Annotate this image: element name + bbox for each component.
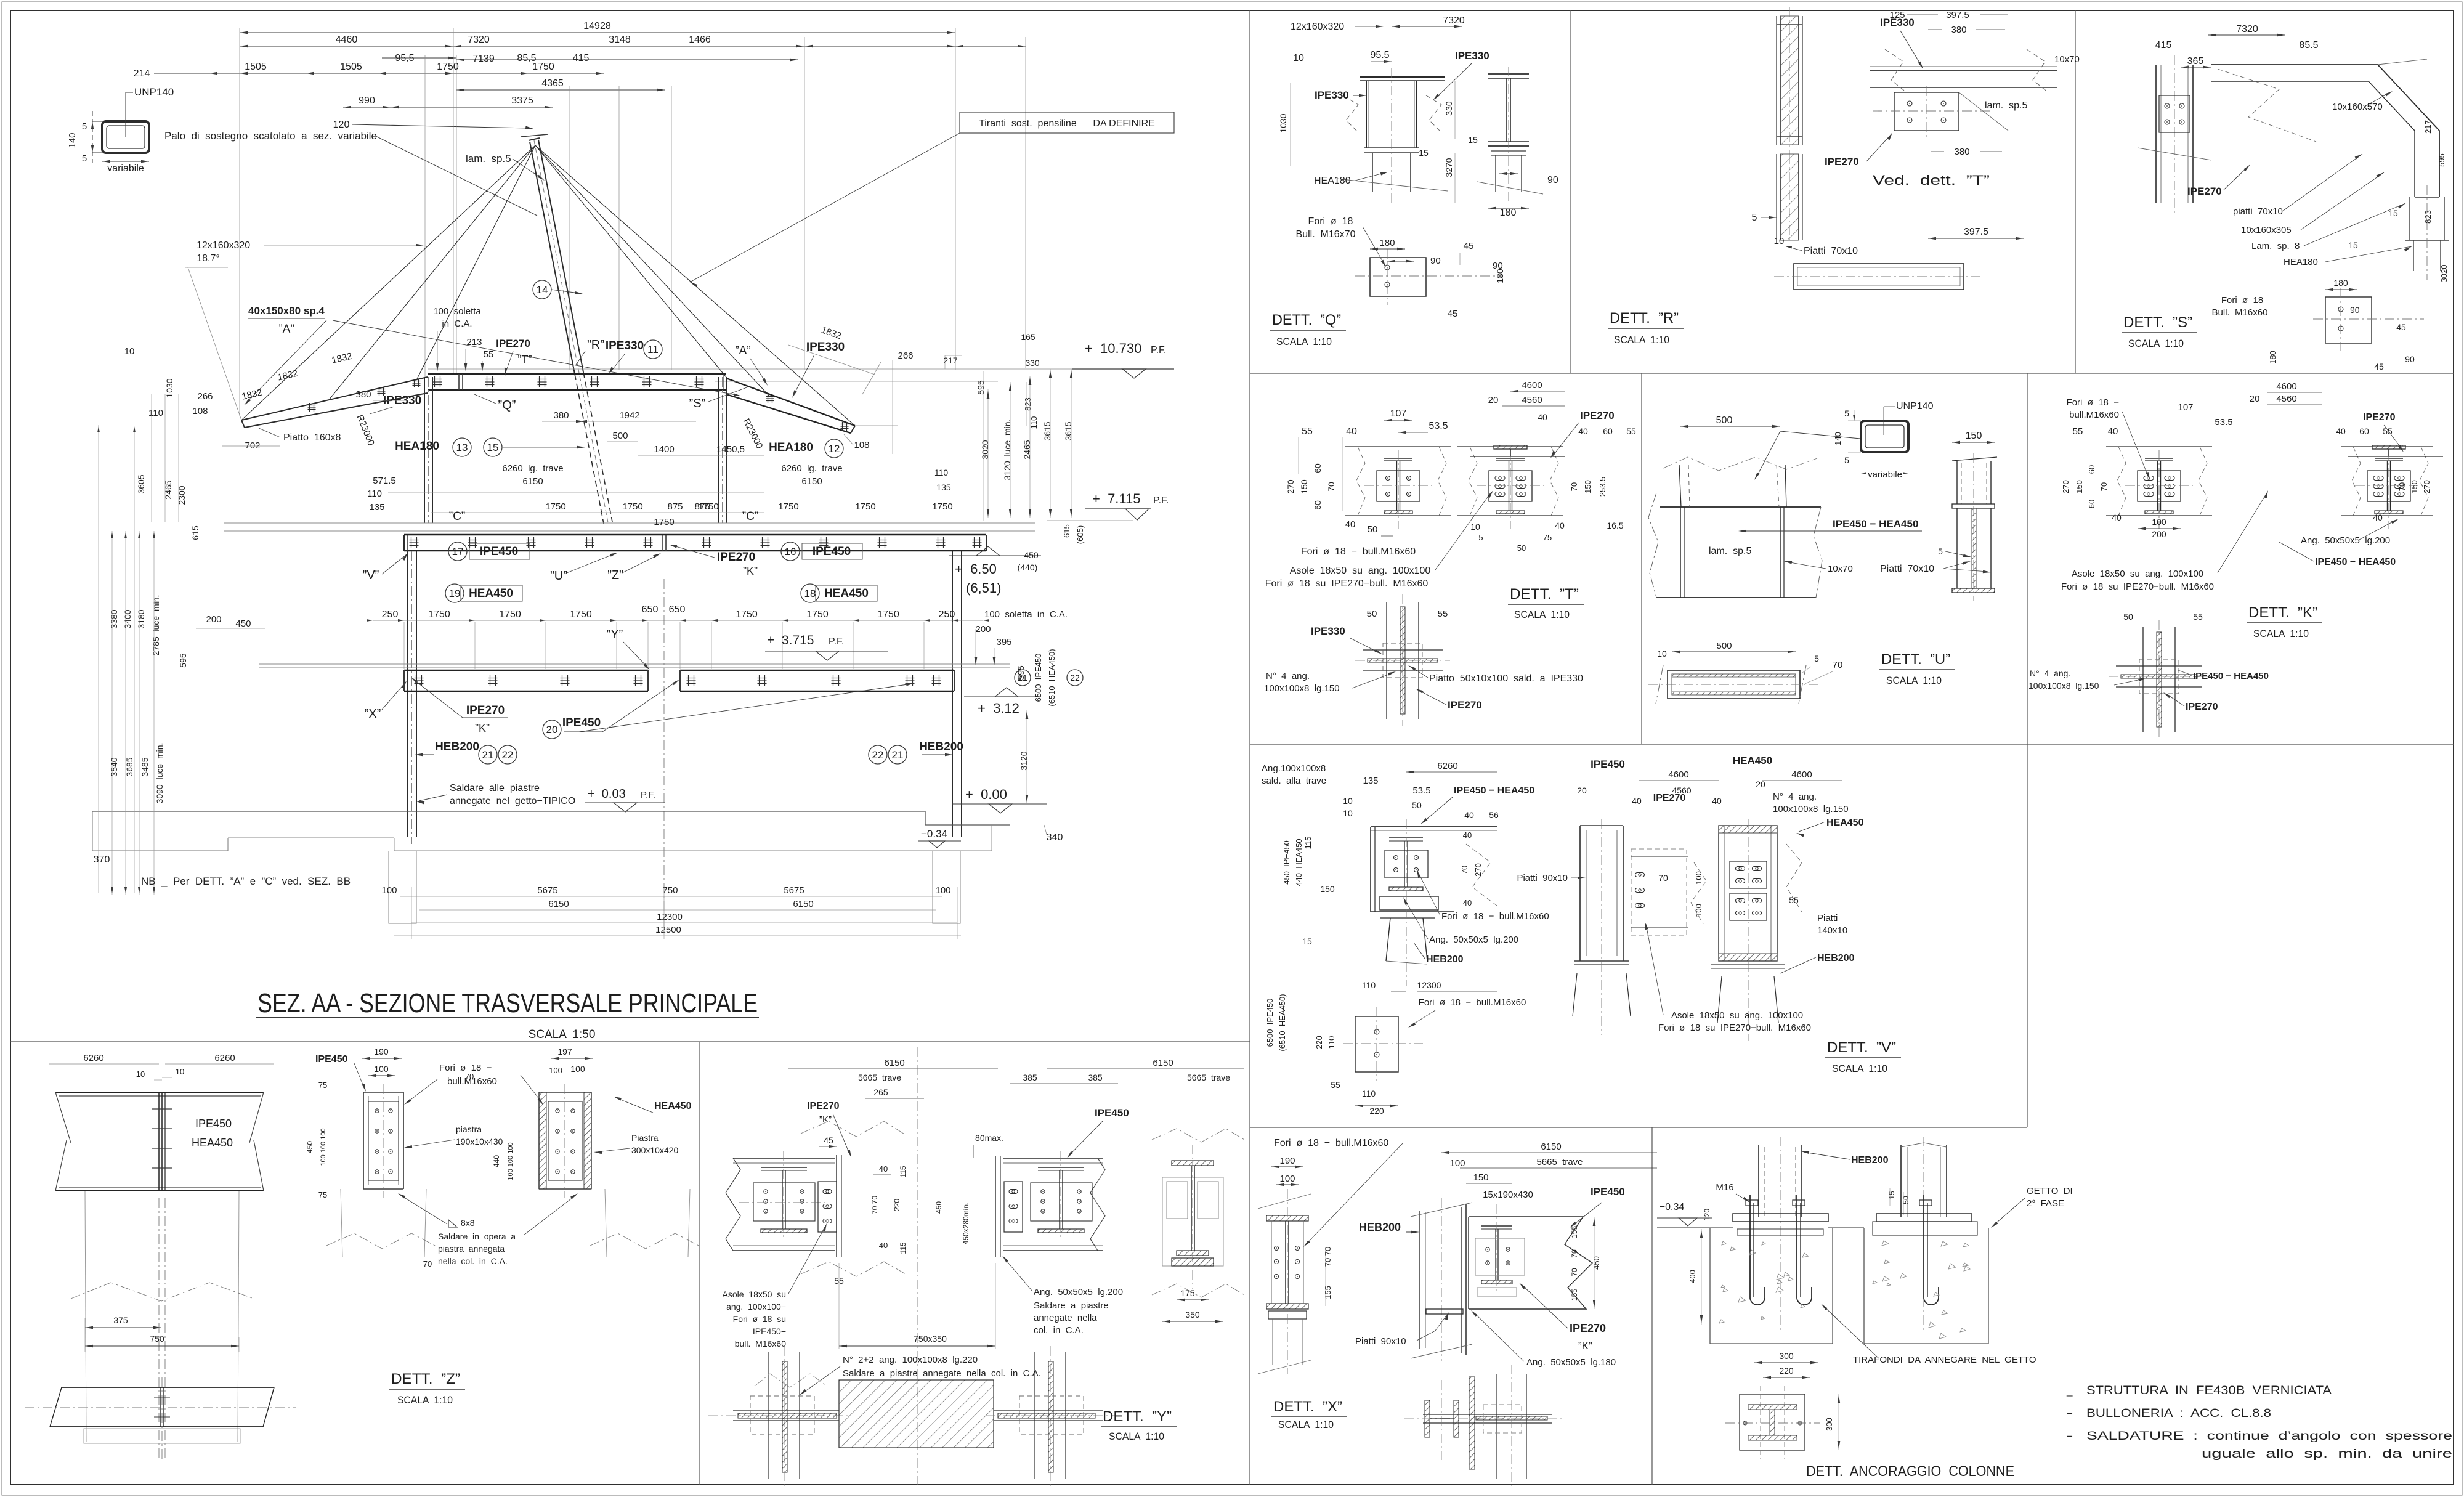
- svg-text:21: 21: [1018, 673, 1027, 683]
- svg-text:3485: 3485: [140, 757, 150, 776]
- svg-text:lam. sp.5: lam. sp.5: [466, 153, 511, 164]
- svg-text:DETT. ”K”: DETT. ”K”: [2248, 604, 2317, 621]
- svg-text:10: 10: [136, 1069, 145, 1079]
- svg-text:SCALA 1:10: SCALA 1:10: [1886, 675, 1942, 686]
- svg-text:702: 702: [245, 440, 260, 451]
- svg-text:3270: 3270: [1444, 158, 1454, 177]
- svg-text:55: 55: [2193, 612, 2203, 622]
- svg-text:40: 40: [879, 1241, 888, 1250]
- svg-text:SCALA 1:10: SCALA 1:10: [397, 1394, 453, 1406]
- svg-text:annegate nel getto−TIPICO: annegate nel getto−TIPICO: [450, 796, 575, 806]
- svg-text:HEA180: HEA180: [2284, 257, 2318, 267]
- svg-text:135: 135: [1363, 776, 1378, 786]
- svg-text:Piatti: Piatti: [1817, 913, 1838, 923]
- svg-text:53.5: 53.5: [1412, 785, 1430, 796]
- svg-text:266: 266: [898, 351, 913, 361]
- svg-text:IPE450: IPE450: [1591, 1186, 1625, 1198]
- svg-text:70 70: 70 70: [870, 1196, 879, 1214]
- svg-text:18.7°: 18.7°: [197, 253, 220, 264]
- svg-text:50: 50: [2123, 612, 2133, 622]
- svg-text:−0.34: −0.34: [921, 828, 947, 840]
- svg-text:397.5: 397.5: [1964, 227, 1988, 237]
- svg-text:”A”: ”A”: [278, 323, 294, 336]
- svg-text:5: 5: [1814, 654, 1819, 663]
- svg-text:Asole 18x50 su ang. 100x10: Asole 18x50 su ang. 100x100: [2072, 569, 2203, 579]
- svg-text:HEA450: HEA450: [192, 1137, 233, 1149]
- svg-text:150: 150: [1583, 480, 1592, 493]
- svg-text:180: 180: [2268, 351, 2277, 364]
- svg-text:Piatto 50x10x100 sald. a I: Piatto 50x10x100 sald. a IPE330: [1429, 673, 1583, 684]
- svg-text:450: 450: [934, 1201, 943, 1214]
- svg-text:3090 luce min.: 3090 luce min.: [155, 743, 164, 804]
- svg-text:1750: 1750: [877, 609, 899, 620]
- svg-text:10: 10: [1343, 808, 1353, 818]
- svg-text:”X”: ”X”: [365, 707, 381, 721]
- svg-text:108: 108: [854, 440, 869, 450]
- svg-text:”C”: ”C”: [742, 510, 758, 523]
- svg-text:90: 90: [2350, 305, 2360, 315]
- svg-text:12x160x320: 12x160x320: [197, 240, 250, 251]
- svg-text:1450,5: 1450,5: [716, 444, 745, 455]
- svg-text:270: 270: [1286, 479, 1295, 494]
- svg-text:40: 40: [2112, 513, 2122, 522]
- svg-text:45: 45: [2396, 322, 2406, 332]
- svg-text:10: 10: [1343, 796, 1353, 806]
- svg-text:40: 40: [1538, 412, 1547, 422]
- svg-text:Ang. 50x50x5 lg.200: Ang. 50x50x5 lg.200: [2301, 535, 2390, 546]
- svg-text:1750: 1750: [437, 62, 459, 72]
- svg-text:SCALA 1:10: SCALA 1:10: [1278, 1419, 1334, 1430]
- svg-text:17: 17: [452, 546, 464, 558]
- svg-text:DETT. ANCORAGGIO COLONNE: DETT. ANCORAGGIO COLONNE: [1806, 1463, 2014, 1480]
- svg-text:140: 140: [67, 132, 78, 148]
- svg-text:200: 200: [975, 624, 991, 635]
- svg-text:22: 22: [1070, 673, 1080, 683]
- svg-text:SALDATURE : continue d’ango: SALDATURE : continue d’angolo con spesso…: [2086, 1430, 2452, 1443]
- svg-text:100x100x8 lg.150: 100x100x8 lg.150: [2028, 681, 2099, 691]
- svg-text:piastra: piastra: [456, 1124, 482, 1134]
- svg-text:P.F.: P.F.: [1153, 495, 1169, 506]
- svg-text:220: 220: [1779, 1366, 1794, 1376]
- svg-text:Fori ø 18 − bull.M16x60: Fori ø 18 − bull.M16x60: [1301, 546, 1416, 557]
- svg-text:40: 40: [2108, 426, 2118, 437]
- svg-text:15: 15: [1302, 936, 1312, 946]
- svg-text:270: 270: [2061, 480, 2070, 493]
- svg-text:DETT. ”T”: DETT. ”T”: [1510, 586, 1579, 602]
- svg-text:Piatto 160x8: Piatto 160x8: [283, 432, 341, 443]
- svg-text:SCALA 1:10: SCALA 1:10: [1832, 1063, 1887, 1074]
- svg-text:Fori ø 18 − bull.M16x60: Fori ø 18 − bull.M16x60: [1274, 1138, 1388, 1148]
- svg-text:NB _ Per DETT. ”A” e ”C”: NB _ Per DETT. ”A” e ”C” ved. SEZ. BB: [141, 875, 351, 887]
- svg-text:DETT. ”R”: DETT. ”R”: [1610, 310, 1679, 327]
- svg-text:50: 50: [1412, 800, 1422, 810]
- svg-text:+ 6.50: + 6.50: [955, 561, 997, 577]
- svg-text:100x100x8 lg.150: 100x100x8 lg.150: [1264, 683, 1340, 694]
- svg-text:100: 100: [1694, 904, 1703, 917]
- svg-text:150: 150: [2075, 480, 2084, 493]
- svg-text:450: 450: [1592, 1256, 1601, 1270]
- svg-text:DETT. ”Y”: DETT. ”Y”: [1103, 1408, 1172, 1425]
- svg-text:40: 40: [1463, 898, 1472, 907]
- svg-text:266: 266: [197, 391, 213, 402]
- svg-text:SCALA 1:10: SCALA 1:10: [1109, 1430, 1164, 1442]
- svg-text:45: 45: [1448, 309, 1458, 319]
- svg-text:11: 11: [647, 344, 659, 355]
- svg-text:1466: 1466: [689, 34, 711, 45]
- svg-text:40: 40: [2373, 513, 2383, 522]
- svg-text:75: 75: [318, 1190, 327, 1199]
- svg-text:DETT. ”Z”: DETT. ”Z”: [391, 1371, 460, 1387]
- svg-text:2° FASE: 2° FASE: [2027, 1198, 2064, 1209]
- svg-text:HEB200: HEB200: [435, 740, 479, 753]
- svg-text:1750: 1750: [932, 501, 952, 512]
- svg-text:107: 107: [2178, 402, 2193, 413]
- svg-text:4560: 4560: [2276, 394, 2296, 404]
- svg-text:IPE330: IPE330: [1315, 89, 1349, 101]
- svg-text:IPE450 − HEA450: IPE450 − HEA450: [2315, 557, 2396, 567]
- svg-text:N° 4 ang.: N° 4 ang.: [1773, 792, 1817, 802]
- svg-text:nella col. in C.A.: nella col. in C.A.: [438, 1256, 508, 1266]
- svg-text:”C”: ”C”: [449, 510, 465, 523]
- svg-text:90: 90: [1547, 175, 1558, 185]
- svg-text:155: 155: [1570, 1226, 1579, 1238]
- svg-text:2465: 2465: [163, 480, 173, 499]
- svg-text:+ 0.00: + 0.00: [965, 787, 1007, 802]
- svg-text:253.5: 253.5: [1598, 477, 1607, 497]
- svg-text:217: 217: [943, 355, 958, 365]
- svg-text:Ang.100x100x8: Ang.100x100x8: [1262, 763, 1326, 774]
- svg-text:1750: 1750: [532, 62, 554, 72]
- svg-text:380: 380: [553, 410, 569, 421]
- svg-text:1750: 1750: [428, 609, 450, 620]
- svg-text:HEA450: HEA450: [654, 1101, 692, 1111]
- svg-text:+ 10.730: + 10.730: [1085, 341, 1141, 356]
- svg-text:150: 150: [1966, 431, 1982, 441]
- svg-text:4365: 4365: [541, 78, 564, 89]
- svg-text:3120: 3120: [1019, 751, 1029, 770]
- svg-text:70: 70: [2099, 482, 2109, 491]
- svg-text:16: 16: [785, 546, 796, 558]
- svg-text:100: 100: [570, 1064, 585, 1074]
- svg-text:15: 15: [1419, 148, 1429, 158]
- svg-text:85.5: 85.5: [2299, 40, 2318, 51]
- svg-text:IPE270: IPE270: [496, 338, 530, 349]
- svg-text:375: 375: [113, 1315, 128, 1325]
- svg-text:IPE330: IPE330: [1455, 50, 1489, 62]
- svg-text:385: 385: [1023, 1073, 1037, 1082]
- svg-text:+ 3.715: + 3.715: [767, 633, 814, 647]
- svg-text:3605: 3605: [136, 474, 146, 493]
- svg-text:595: 595: [178, 653, 188, 668]
- svg-text:IPE330: IPE330: [606, 339, 644, 352]
- svg-text:Palo di sostegno scatolato: Palo di sostegno scatolato a sez. variab…: [164, 130, 377, 142]
- svg-text:”S”: ”S”: [689, 397, 706, 410]
- svg-text:”Q”: ”Q”: [498, 399, 516, 412]
- svg-text:BULLONERIA : ACC. CL.8.8: BULLONERIA : ACC. CL.8.8: [2086, 1407, 2271, 1420]
- svg-text:214: 214: [134, 68, 150, 79]
- svg-text:40: 40: [1578, 426, 1588, 436]
- svg-text:IPE330: IPE330: [806, 341, 845, 354]
- svg-text:1750: 1750: [654, 517, 674, 527]
- svg-text:col. in C.A.: col. in C.A.: [1034, 1325, 1084, 1336]
- svg-text:10x70: 10x70: [2054, 54, 2080, 65]
- svg-text:135: 135: [369, 502, 384, 513]
- svg-text:1030: 1030: [1278, 113, 1288, 132]
- svg-text:56: 56: [1489, 810, 1499, 820]
- svg-text:HEB200: HEB200: [1359, 1221, 1401, 1233]
- svg-text:5: 5: [1844, 408, 1849, 418]
- svg-text:270: 270: [2422, 480, 2431, 493]
- svg-text:15x190x430: 15x190x430: [1483, 1190, 1533, 1200]
- svg-text:380: 380: [355, 389, 371, 400]
- svg-text:823: 823: [1023, 397, 1032, 411]
- svg-text:380: 380: [1951, 25, 1966, 35]
- svg-text:UNP140: UNP140: [1896, 401, 1934, 412]
- svg-text:150: 150: [1299, 479, 1309, 494]
- svg-text:70: 70: [2397, 482, 2407, 491]
- svg-text:+ 7.115: + 7.115: [1092, 491, 1141, 506]
- svg-text:”Z”: ”Z”: [607, 569, 623, 582]
- svg-text:190x10x430: 190x10x430: [456, 1137, 503, 1146]
- svg-text:3120 luce min.: 3120 luce min.: [1002, 420, 1012, 481]
- svg-text:1750: 1750: [778, 501, 798, 512]
- svg-text:3020: 3020: [2439, 265, 2449, 283]
- svg-text:55: 55: [1789, 895, 1799, 905]
- svg-text:6260: 6260: [1437, 761, 1457, 771]
- svg-text:1750: 1750: [736, 609, 758, 620]
- svg-text:365: 365: [2187, 56, 2204, 67]
- svg-text:217: 217: [2423, 120, 2433, 134]
- svg-text:213: 213: [466, 337, 482, 347]
- svg-text:385: 385: [1088, 1073, 1103, 1082]
- svg-text:bull.M16x60: bull.M16x60: [2069, 410, 2119, 420]
- svg-text:Ved. dett. ”T”: Ved. dett. ”T”: [1873, 172, 1990, 188]
- svg-text:60: 60: [1313, 463, 1323, 473]
- svg-text:415: 415: [573, 53, 590, 63]
- svg-text:SCALA 1:10: SCALA 1:10: [1276, 336, 1332, 347]
- svg-text:IPE450: IPE450: [1591, 758, 1625, 770]
- svg-text:IPE270: IPE270: [1570, 1322, 1606, 1334]
- svg-text:70: 70: [1658, 873, 1668, 883]
- svg-text:100: 100: [2152, 517, 2166, 527]
- svg-text:340: 340: [1047, 832, 1063, 843]
- svg-text:95.5: 95.5: [1370, 50, 1389, 60]
- svg-text:80max.: 80max.: [975, 1133, 1003, 1143]
- svg-text:uguale allo sp. min. da u: uguale allo sp. min. da unire: [2202, 1448, 2452, 1461]
- svg-text:175: 175: [1180, 1288, 1195, 1298]
- svg-text:HEA450: HEA450: [1826, 817, 1864, 828]
- svg-text:Fori ø 18 −: Fori ø 18 −: [2067, 397, 2120, 408]
- svg-text:20: 20: [546, 724, 558, 736]
- svg-text:Fori ø 18 su: Fori ø 18 su: [733, 1314, 786, 1324]
- svg-text:6260 lg. trave: 6260 lg. trave: [781, 463, 842, 474]
- svg-text:200: 200: [206, 614, 221, 625]
- svg-text:4460: 4460: [336, 34, 358, 45]
- svg-text:Asole 18x50 su ang. 100x10: Asole 18x50 su ang. 100x100: [1671, 1010, 1803, 1021]
- svg-text:IPE450 − HEA450: IPE450 − HEA450: [1833, 518, 1918, 530]
- svg-text:75: 75: [318, 1081, 327, 1090]
- svg-text:Piastra: Piastra: [631, 1133, 659, 1143]
- svg-text:450: 450: [1024, 550, 1039, 560]
- svg-text:180: 180: [1500, 208, 1517, 218]
- svg-text:40: 40: [1632, 796, 1642, 806]
- svg-text:60: 60: [2087, 465, 2096, 474]
- svg-text:DETT. ”V”: DETT. ”V”: [1827, 1039, 1896, 1056]
- svg-text:75: 75: [1543, 533, 1552, 542]
- svg-text:20: 20: [1756, 779, 1765, 789]
- svg-text:3615: 3615: [1063, 421, 1073, 440]
- svg-text:100: 100: [549, 1066, 562, 1075]
- svg-text:IPE450: IPE450: [315, 1054, 348, 1065]
- svg-text:55: 55: [1438, 609, 1448, 619]
- svg-text:N° 2+2 ang. 100x100x8 lg.2: N° 2+2 ang. 100x100x8 lg.220: [843, 1355, 978, 1365]
- svg-text:750: 750: [662, 885, 678, 896]
- svg-text:110: 110: [148, 408, 163, 418]
- svg-text:3375: 3375: [511, 95, 533, 106]
- svg-text:615: 615: [190, 525, 200, 540]
- svg-text:415: 415: [2155, 40, 2172, 51]
- svg-text:90: 90: [1430, 256, 1441, 266]
- svg-text:1750: 1750: [806, 609, 829, 620]
- svg-text:10: 10: [1470, 522, 1480, 532]
- svg-text:60: 60: [2359, 426, 2369, 436]
- svg-text:10x70: 10x70: [1828, 564, 1853, 574]
- svg-text:IPE270: IPE270: [2363, 412, 2396, 423]
- svg-text:22: 22: [872, 749, 884, 761]
- svg-text:450: 450: [306, 1141, 314, 1153]
- svg-text:3380: 3380: [109, 609, 119, 628]
- svg-text:100: 100: [935, 885, 950, 896]
- svg-text:5665 trave: 5665 trave: [1536, 1157, 1583, 1167]
- svg-text:8x8: 8x8: [461, 1218, 475, 1228]
- svg-text:(6510 HEA450): (6510 HEA450): [1278, 994, 1287, 1051]
- svg-text:TIRAFONDI DA ANNEGARE NEL: TIRAFONDI DA ANNEGARE NEL GETTO: [1853, 1355, 2036, 1365]
- svg-text:197: 197: [557, 1047, 572, 1057]
- svg-text:60: 60: [2087, 500, 2096, 508]
- svg-text:100 100 100: 100 100 100: [320, 1128, 327, 1166]
- svg-text:55: 55: [2073, 426, 2083, 437]
- svg-text:5665 trave: 5665 trave: [1187, 1073, 1230, 1082]
- svg-text:”K”: ”K”: [819, 1114, 832, 1125]
- svg-text:Tiranti sost. pensiline _: Tiranti sost. pensiline _ DA DEFINIRE: [979, 118, 1155, 129]
- svg-text:140x10: 140x10: [1817, 925, 1847, 936]
- svg-text:110: 110: [367, 489, 382, 499]
- svg-text:350: 350: [1185, 1310, 1200, 1320]
- svg-text:100 soletta: 100 soletta: [433, 306, 481, 317]
- svg-text:300x10x420: 300x10x420: [631, 1145, 679, 1155]
- svg-text:Fori ø 18: Fori ø 18: [1308, 216, 1353, 227]
- svg-text:100: 100: [1449, 1158, 1465, 1169]
- svg-text:115: 115: [899, 1242, 907, 1254]
- svg-text:70: 70: [423, 1259, 432, 1268]
- svg-text:40: 40: [1346, 426, 1357, 437]
- svg-text:piastra annegata: piastra annegata: [438, 1244, 505, 1254]
- svg-text:397.5: 397.5: [1946, 10, 1969, 20]
- svg-text:IPE450 − HEA450: IPE450 − HEA450: [1454, 785, 1534, 796]
- svg-text:3540: 3540: [109, 757, 119, 776]
- svg-text:16.5: 16.5: [1607, 521, 1623, 530]
- svg-text:380: 380: [1954, 147, 1969, 157]
- svg-text:395: 395: [996, 637, 1011, 647]
- svg-text:6150: 6150: [1541, 1142, 1561, 1152]
- svg-text:HEA180: HEA180: [769, 441, 813, 454]
- svg-text:IPE450: IPE450: [195, 1118, 232, 1130]
- svg-text:HEA450: HEA450: [469, 587, 513, 600]
- svg-text:190: 190: [1279, 1156, 1295, 1166]
- svg-text:P.F.: P.F.: [641, 790, 655, 800]
- svg-text:1942: 1942: [619, 410, 639, 421]
- svg-text:IPE330: IPE330: [383, 394, 421, 407]
- svg-text:IPE270: IPE270: [807, 1101, 840, 1111]
- svg-text:7320: 7320: [2236, 24, 2258, 34]
- svg-text:HEA450: HEA450: [1733, 755, 1772, 766]
- svg-text:100 100 100: 100 100 100: [507, 1142, 514, 1180]
- svg-text:−0.34: −0.34: [1660, 1202, 1685, 1212]
- svg-text:14: 14: [537, 284, 548, 296]
- svg-text:”Y”: ”Y”: [607, 628, 623, 641]
- svg-text:HEA180: HEA180: [395, 440, 439, 453]
- svg-text:22: 22: [502, 749, 514, 761]
- svg-text:4600: 4600: [1668, 769, 1688, 780]
- svg-text:40x150x80 sp.4: 40x150x80 sp.4: [248, 305, 325, 317]
- svg-text:4600: 4600: [1791, 769, 1812, 780]
- svg-text:−: −: [2067, 1430, 2073, 1442]
- svg-text:70: 70: [1460, 866, 1469, 874]
- svg-text:220: 220: [1369, 1106, 1384, 1116]
- svg-text:Ang. 50x50x5 lg.180: Ang. 50x50x5 lg.180: [1526, 1357, 1616, 1368]
- svg-text:1505: 1505: [245, 62, 267, 72]
- svg-text:HEB200: HEB200: [919, 740, 963, 753]
- svg-text:1750: 1750: [622, 501, 642, 512]
- svg-text:6150: 6150: [793, 899, 813, 909]
- svg-text:Piatti 70x10: Piatti 70x10: [1880, 564, 1934, 574]
- svg-text:125: 125: [1889, 10, 1905, 20]
- svg-text:bull. M16x60: bull. M16x60: [735, 1339, 786, 1349]
- svg-text:50: 50: [1517, 543, 1526, 553]
- svg-text:6150: 6150: [884, 1058, 904, 1068]
- svg-text:120: 120: [333, 120, 350, 130]
- svg-text:5: 5: [1844, 455, 1849, 465]
- svg-text:7320: 7320: [1443, 15, 1465, 26]
- svg-text:P.F.: P.F.: [1151, 345, 1167, 355]
- svg-text:875: 875: [694, 501, 710, 512]
- svg-text:SCALA 1:10: SCALA 1:10: [1514, 609, 1570, 620]
- svg-text:70: 70: [1326, 482, 1336, 492]
- svg-text:annegate nella: annegate nella: [1034, 1313, 1097, 1323]
- svg-text:1030: 1030: [164, 378, 174, 397]
- svg-text:IPE270: IPE270: [1448, 699, 1482, 711]
- svg-text:440 HEA450: 440 HEA450: [1294, 838, 1303, 886]
- svg-text:750: 750: [150, 1334, 164, 1344]
- svg-text:Fori ø 18 − bull.M16x60: Fori ø 18 − bull.M16x60: [1419, 997, 1526, 1008]
- svg-text:13: 13: [456, 442, 468, 453]
- svg-text:14928: 14928: [583, 21, 611, 31]
- svg-text:”A”: ”A”: [735, 344, 750, 357]
- svg-text:150: 150: [1473, 1172, 1488, 1183]
- svg-text:19: 19: [449, 588, 461, 599]
- svg-text:6150: 6150: [548, 899, 569, 909]
- svg-text:110: 110: [934, 468, 949, 477]
- svg-text:100: 100: [381, 885, 397, 896]
- svg-text:45: 45: [824, 1135, 833, 1145]
- svg-text:DETT. ”X”: DETT. ”X”: [1273, 1398, 1342, 1415]
- svg-text:Asole 18x50 su ang. 100x10: Asole 18x50 su ang. 100x100: [1290, 566, 1431, 576]
- svg-text:10: 10: [176, 1067, 184, 1076]
- svg-text:90: 90: [2405, 354, 2415, 364]
- svg-text:6150: 6150: [522, 476, 543, 487]
- svg-text:Saldare a piastre annegate: Saldare a piastre annegate nella col. in…: [843, 1368, 1041, 1379]
- svg-text:107: 107: [1390, 408, 1407, 419]
